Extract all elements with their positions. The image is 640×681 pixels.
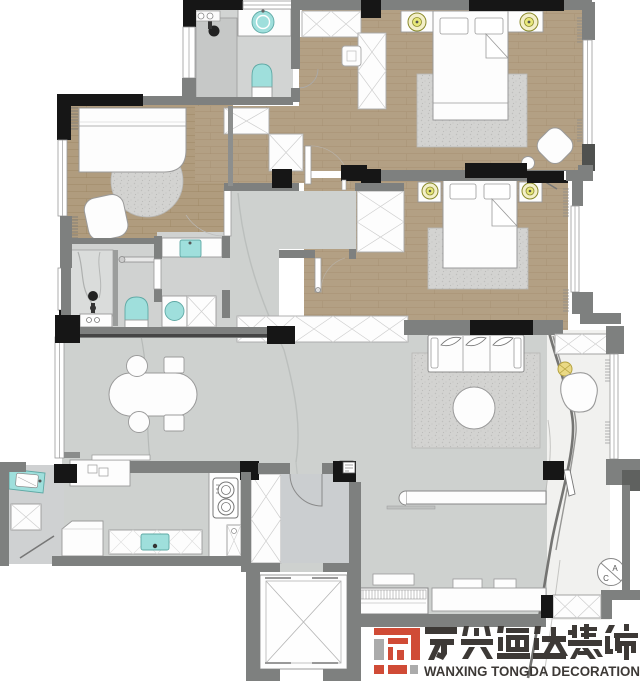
svg-text:WANXING TONGDA DECORATION: WANXING TONGDA DECORATION [424,664,640,679]
svg-text:C: C [603,574,609,583]
svg-text:A: A [612,564,618,573]
